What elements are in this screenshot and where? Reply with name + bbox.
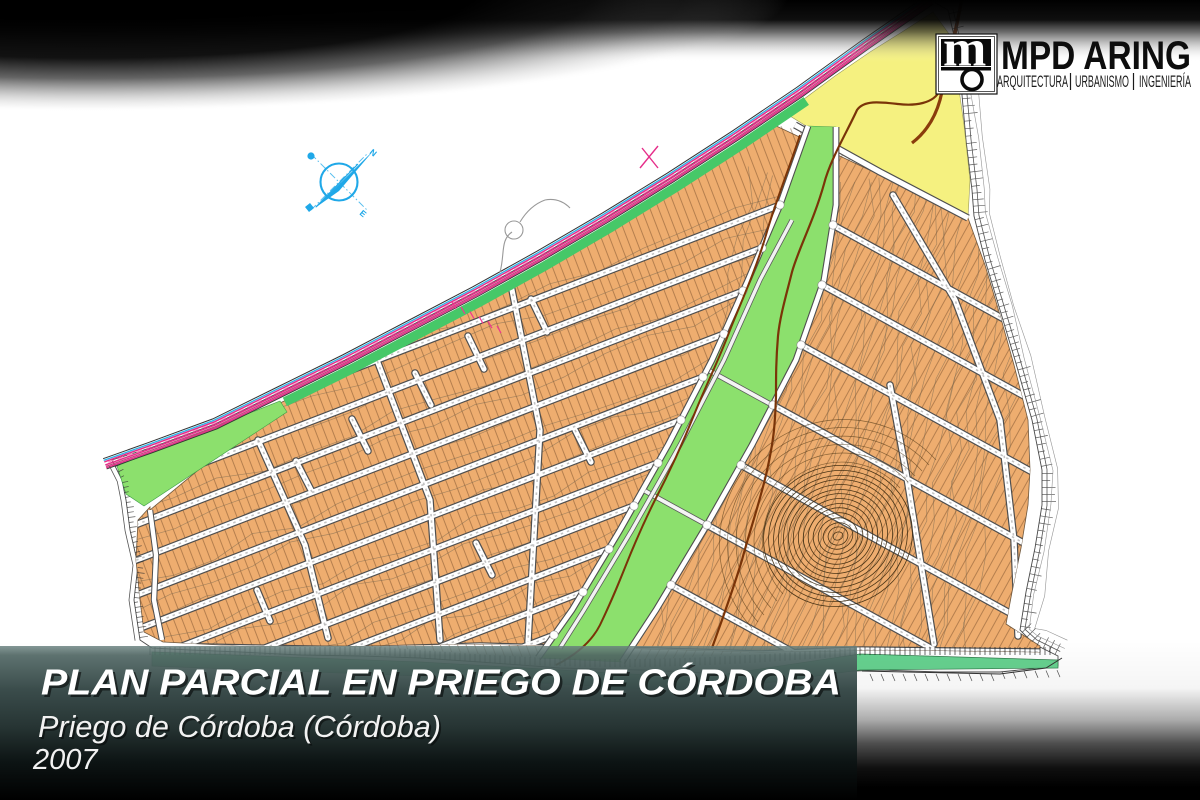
svg-text:2007: 2007 — [32, 744, 99, 776]
svg-text:Priego de Córdoba (Córdoba): Priego de Córdoba (Córdoba) — [38, 709, 441, 744]
svg-text:INGENIERÍA: INGENIERÍA — [1139, 72, 1191, 91]
svg-text:PLAN PARCIAL EN PRIEGO DE CÓRD: PLAN PARCIAL EN PRIEGO DE CÓRDOBA — [41, 662, 841, 703]
svg-text:ARQUITECTURA: ARQUITECTURA — [997, 72, 1068, 91]
svg-text:URBANISMO: URBANISMO — [1075, 72, 1129, 91]
